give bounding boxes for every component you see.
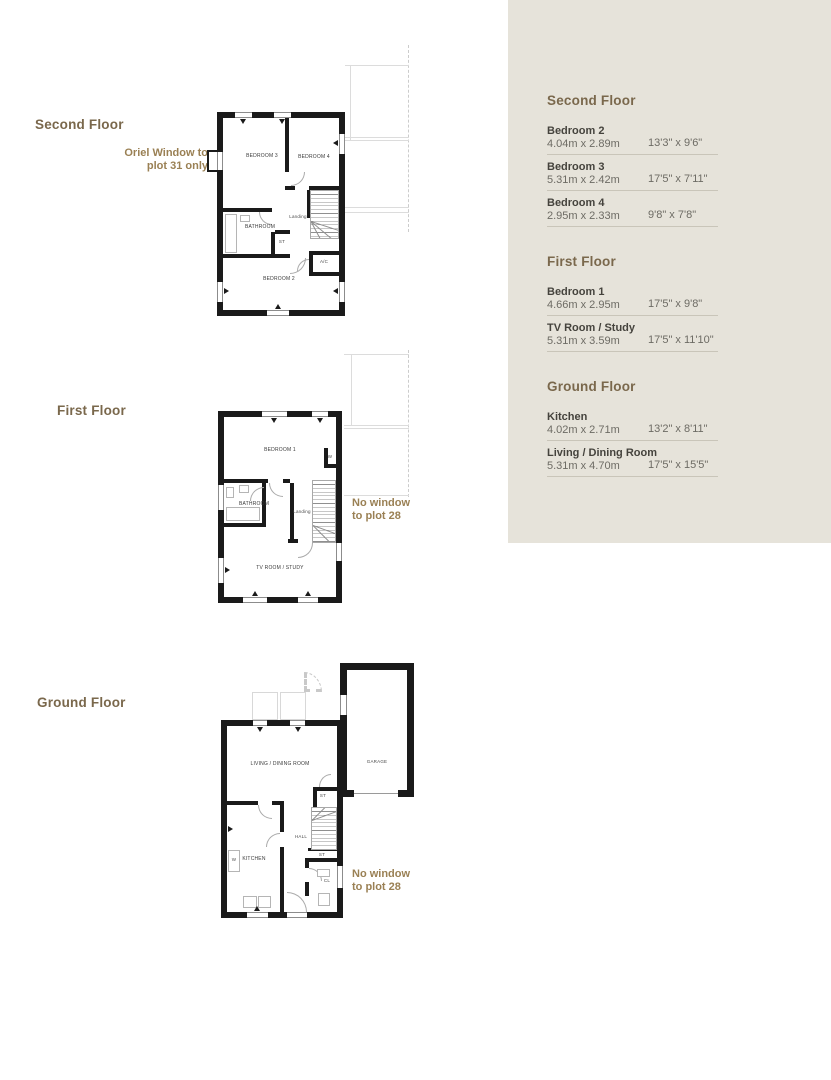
plot-boundary-dashed-line: [408, 350, 409, 497]
adjacent-plot-line: [344, 495, 409, 496]
panel-section-first-floor: First Floor Bedroom 1 4.66m x 2.95m 17'5…: [547, 255, 831, 352]
window-marker: [252, 591, 258, 596]
room-label-store-top: ST: [315, 793, 331, 799]
room-label-hall: HALL: [284, 834, 318, 840]
door-swing-arc: [319, 774, 331, 787]
front-door-swing-arc: [287, 892, 307, 912]
window-marker: [275, 304, 281, 309]
window: [218, 485, 224, 510]
room-label-garage: GARAGE: [354, 759, 400, 765]
room-imperial-dims: 17'5" x 11'10": [648, 334, 714, 346]
wall: [285, 186, 295, 190]
floor-title-second: Second Floor: [35, 117, 124, 132]
canopy-outline: [280, 692, 306, 720]
window-marker: [317, 418, 323, 423]
wall: [280, 801, 284, 832]
adjacent-plot-line: [345, 207, 409, 208]
floorplan-page: Second Floor Bedroom 2 4.04m x 2.89m 13'…: [0, 0, 831, 1080]
window-marker: [333, 288, 338, 294]
window: [247, 912, 268, 918]
room-label-airing-cupboard: A/C: [313, 259, 335, 265]
window: [339, 282, 345, 302]
annotation-line: to plot 28: [352, 510, 410, 523]
room-imperial-dims: 13'3" x 9'6": [648, 137, 702, 149]
room-name: Bedroom 1: [547, 286, 718, 298]
window-marker: [254, 906, 260, 911]
room-label-living-dining: LIVING / DINING ROOM: [230, 761, 330, 767]
wall: [223, 254, 290, 258]
annotation-line: No window: [352, 497, 410, 510]
annotation-line: plot 31 only: [108, 160, 208, 173]
door-swing-arc: [266, 833, 280, 847]
room-name: Kitchen: [547, 411, 718, 423]
window-marker: [305, 591, 311, 596]
annotation-no-window-ground: No window to plot 28: [352, 868, 410, 894]
panel-heading-ground-floor: Ground Floor: [547, 380, 831, 394]
door-swing-arc: [269, 483, 283, 497]
adjacent-plot-line: [344, 354, 409, 355]
door-swing-arc: [291, 172, 305, 186]
wall: [340, 663, 414, 670]
room-label-bedroom3: BEDROOM 3: [231, 153, 293, 159]
door-opening: [290, 720, 305, 726]
dimensions-panel: Second Floor Bedroom 2 4.04m x 2.89m 13'…: [508, 0, 831, 543]
toilet: [239, 485, 249, 493]
adjacent-plot-line: [345, 65, 409, 66]
window-marker: [257, 727, 263, 732]
annotation-line: No window: [352, 868, 410, 881]
window-marker: [333, 140, 338, 146]
room-imperial-dims: 17'5" x 9'8": [648, 298, 702, 310]
dim-row-tv-room: TV Room / Study 5.31m x 3.59m 17'5" x 11…: [547, 316, 718, 352]
adjacent-plot-line: [344, 428, 409, 429]
window: [267, 310, 289, 316]
garage-door-line: [354, 793, 398, 794]
front-door-opening: [287, 912, 307, 918]
floor-title-ground: Ground Floor: [37, 695, 126, 710]
wall: [324, 464, 336, 468]
room-imperial-dims: 17'5" x 15'5": [648, 459, 708, 471]
wall: [280, 847, 284, 912]
room-label-landing: Landing: [281, 214, 315, 220]
room-name: TV Room / Study: [547, 322, 718, 334]
room-label-bathroom: BATHROOM: [240, 224, 280, 230]
wall: [305, 882, 309, 896]
window: [339, 134, 345, 154]
window: [243, 597, 267, 603]
room-label-washer: W: [229, 857, 239, 863]
plan-first-floor: BEDROOM 1 W BATHROOM Landing TV ROOM / S…: [218, 411, 342, 603]
panel-section-ground-floor: Ground Floor Kitchen 4.02m x 2.71m 13'2"…: [547, 380, 831, 477]
door-swing-arc: [258, 805, 272, 819]
room-label-cloakroom: CL: [317, 878, 337, 884]
dim-row-bedroom3: Bedroom 3 5.31m x 2.42m 17'5" x 7'11": [547, 155, 718, 191]
wall: [288, 539, 298, 543]
room-label-bedroom2: BEDROOM 2: [243, 276, 315, 282]
adjacent-plot-line: [345, 140, 409, 141]
bathtub: [225, 214, 237, 253]
plot-boundary-dashed-line: [408, 45, 409, 232]
room-name: Living / Dining Room: [547, 447, 718, 459]
blocked-window: [337, 866, 343, 888]
wall: [407, 663, 414, 797]
room-label-landing: Landing: [284, 509, 320, 515]
annotation-line: to plot 28: [352, 881, 410, 894]
window-marker: [240, 119, 246, 124]
door-swing-arc: [298, 543, 313, 558]
room-label-store-under-stairs: ST: [311, 852, 333, 858]
room-imperial-dims: 13'2" x 8'11": [648, 423, 708, 435]
wall: [309, 251, 339, 255]
adjacent-plot-line: [351, 354, 352, 425]
room-name: Bedroom 4: [547, 197, 718, 209]
plan-ground-floor: LIVING / DINING ROOM KITCHEN W HALL ST S…: [221, 720, 343, 918]
gate-swing-arc: [304, 672, 322, 692]
oriel-window: [207, 150, 217, 172]
window-marker: [279, 119, 285, 124]
annotation-no-window-first: No window to plot 28: [352, 497, 410, 523]
bathtub: [226, 507, 260, 521]
window-marker: [295, 727, 301, 732]
panel-heading-second-floor: Second Floor: [547, 94, 831, 108]
adjacent-plot-line: [350, 65, 351, 140]
door-opening: [340, 695, 347, 715]
room-imperial-dims: 17'5" x 7'11": [648, 173, 708, 185]
window: [235, 112, 252, 118]
dim-row-bedroom4: Bedroom 4 2.95m x 2.33m 9'8" x 7'8": [547, 191, 718, 227]
canopy-outline: [252, 692, 278, 720]
wall: [227, 801, 258, 805]
window: [312, 411, 328, 417]
wall: [283, 479, 290, 483]
dim-row-bedroom2: Bedroom 2 4.04m x 2.89m 13'3" x 9'6": [547, 119, 718, 155]
wall: [398, 790, 414, 797]
room-name: Bedroom 2: [547, 125, 718, 137]
door-swing-arc: [250, 487, 264, 501]
staircase: [311, 807, 337, 850]
wall: [285, 118, 289, 172]
room-label-bedroom1: BEDROOM 1: [240, 447, 320, 453]
window-marker: [271, 418, 277, 423]
sink: [226, 487, 234, 498]
annotation-oriel-window: Oriel Window to plot 31 only: [108, 147, 208, 173]
room-label-bathroom: BATHROOM: [234, 501, 274, 507]
room-label-tv-room: TV ROOM / STUDY: [230, 565, 330, 571]
wall: [275, 230, 290, 234]
wall: [224, 523, 266, 527]
sink: [240, 215, 250, 222]
garage-structure: GARAGE: [340, 663, 414, 797]
room-label-bedroom4: BEDROOM 4: [291, 154, 337, 160]
plan-second-floor: BEDROOM 3 BEDROOM 4 Landing BATHROOM ST …: [217, 112, 345, 316]
dim-row-kitchen: Kitchen 4.02m x 2.71m 13'2" x 8'11": [547, 405, 718, 441]
toilet: [318, 893, 330, 906]
window-marker: [224, 288, 229, 294]
wall: [340, 663, 347, 695]
door-opening: [253, 720, 267, 726]
dim-row-bedroom1: Bedroom 1 4.66m x 2.95m 17'5" x 9'8": [547, 280, 718, 316]
room-imperial-dims: 9'8" x 7'8": [648, 209, 696, 221]
sink: [317, 869, 330, 877]
window: [218, 558, 224, 583]
wall: [305, 858, 337, 862]
window: [262, 411, 287, 417]
window: [217, 152, 223, 170]
room-name: Bedroom 3: [547, 161, 718, 173]
blocked-window: [336, 543, 342, 561]
floor-title-first: First Floor: [57, 403, 126, 418]
panel-section-second-floor: Second Floor Bedroom 2 4.04m x 2.89m 13'…: [547, 94, 831, 227]
window-marker: [228, 826, 233, 832]
dim-row-living-dining: Living / Dining Room 5.31m x 4.70m 17'5"…: [547, 441, 718, 477]
window: [298, 597, 318, 603]
adjacent-plot-line: [344, 425, 409, 426]
room-label-wardrobe: W: [324, 454, 336, 460]
adjacent-plot-line: [345, 137, 409, 138]
adjacent-plot-line: [345, 212, 409, 213]
room-label-store: ST: [275, 239, 289, 245]
panel-heading-first-floor: First Floor: [547, 255, 831, 269]
annotation-line: Oriel Window to: [108, 147, 208, 160]
window: [217, 282, 223, 302]
